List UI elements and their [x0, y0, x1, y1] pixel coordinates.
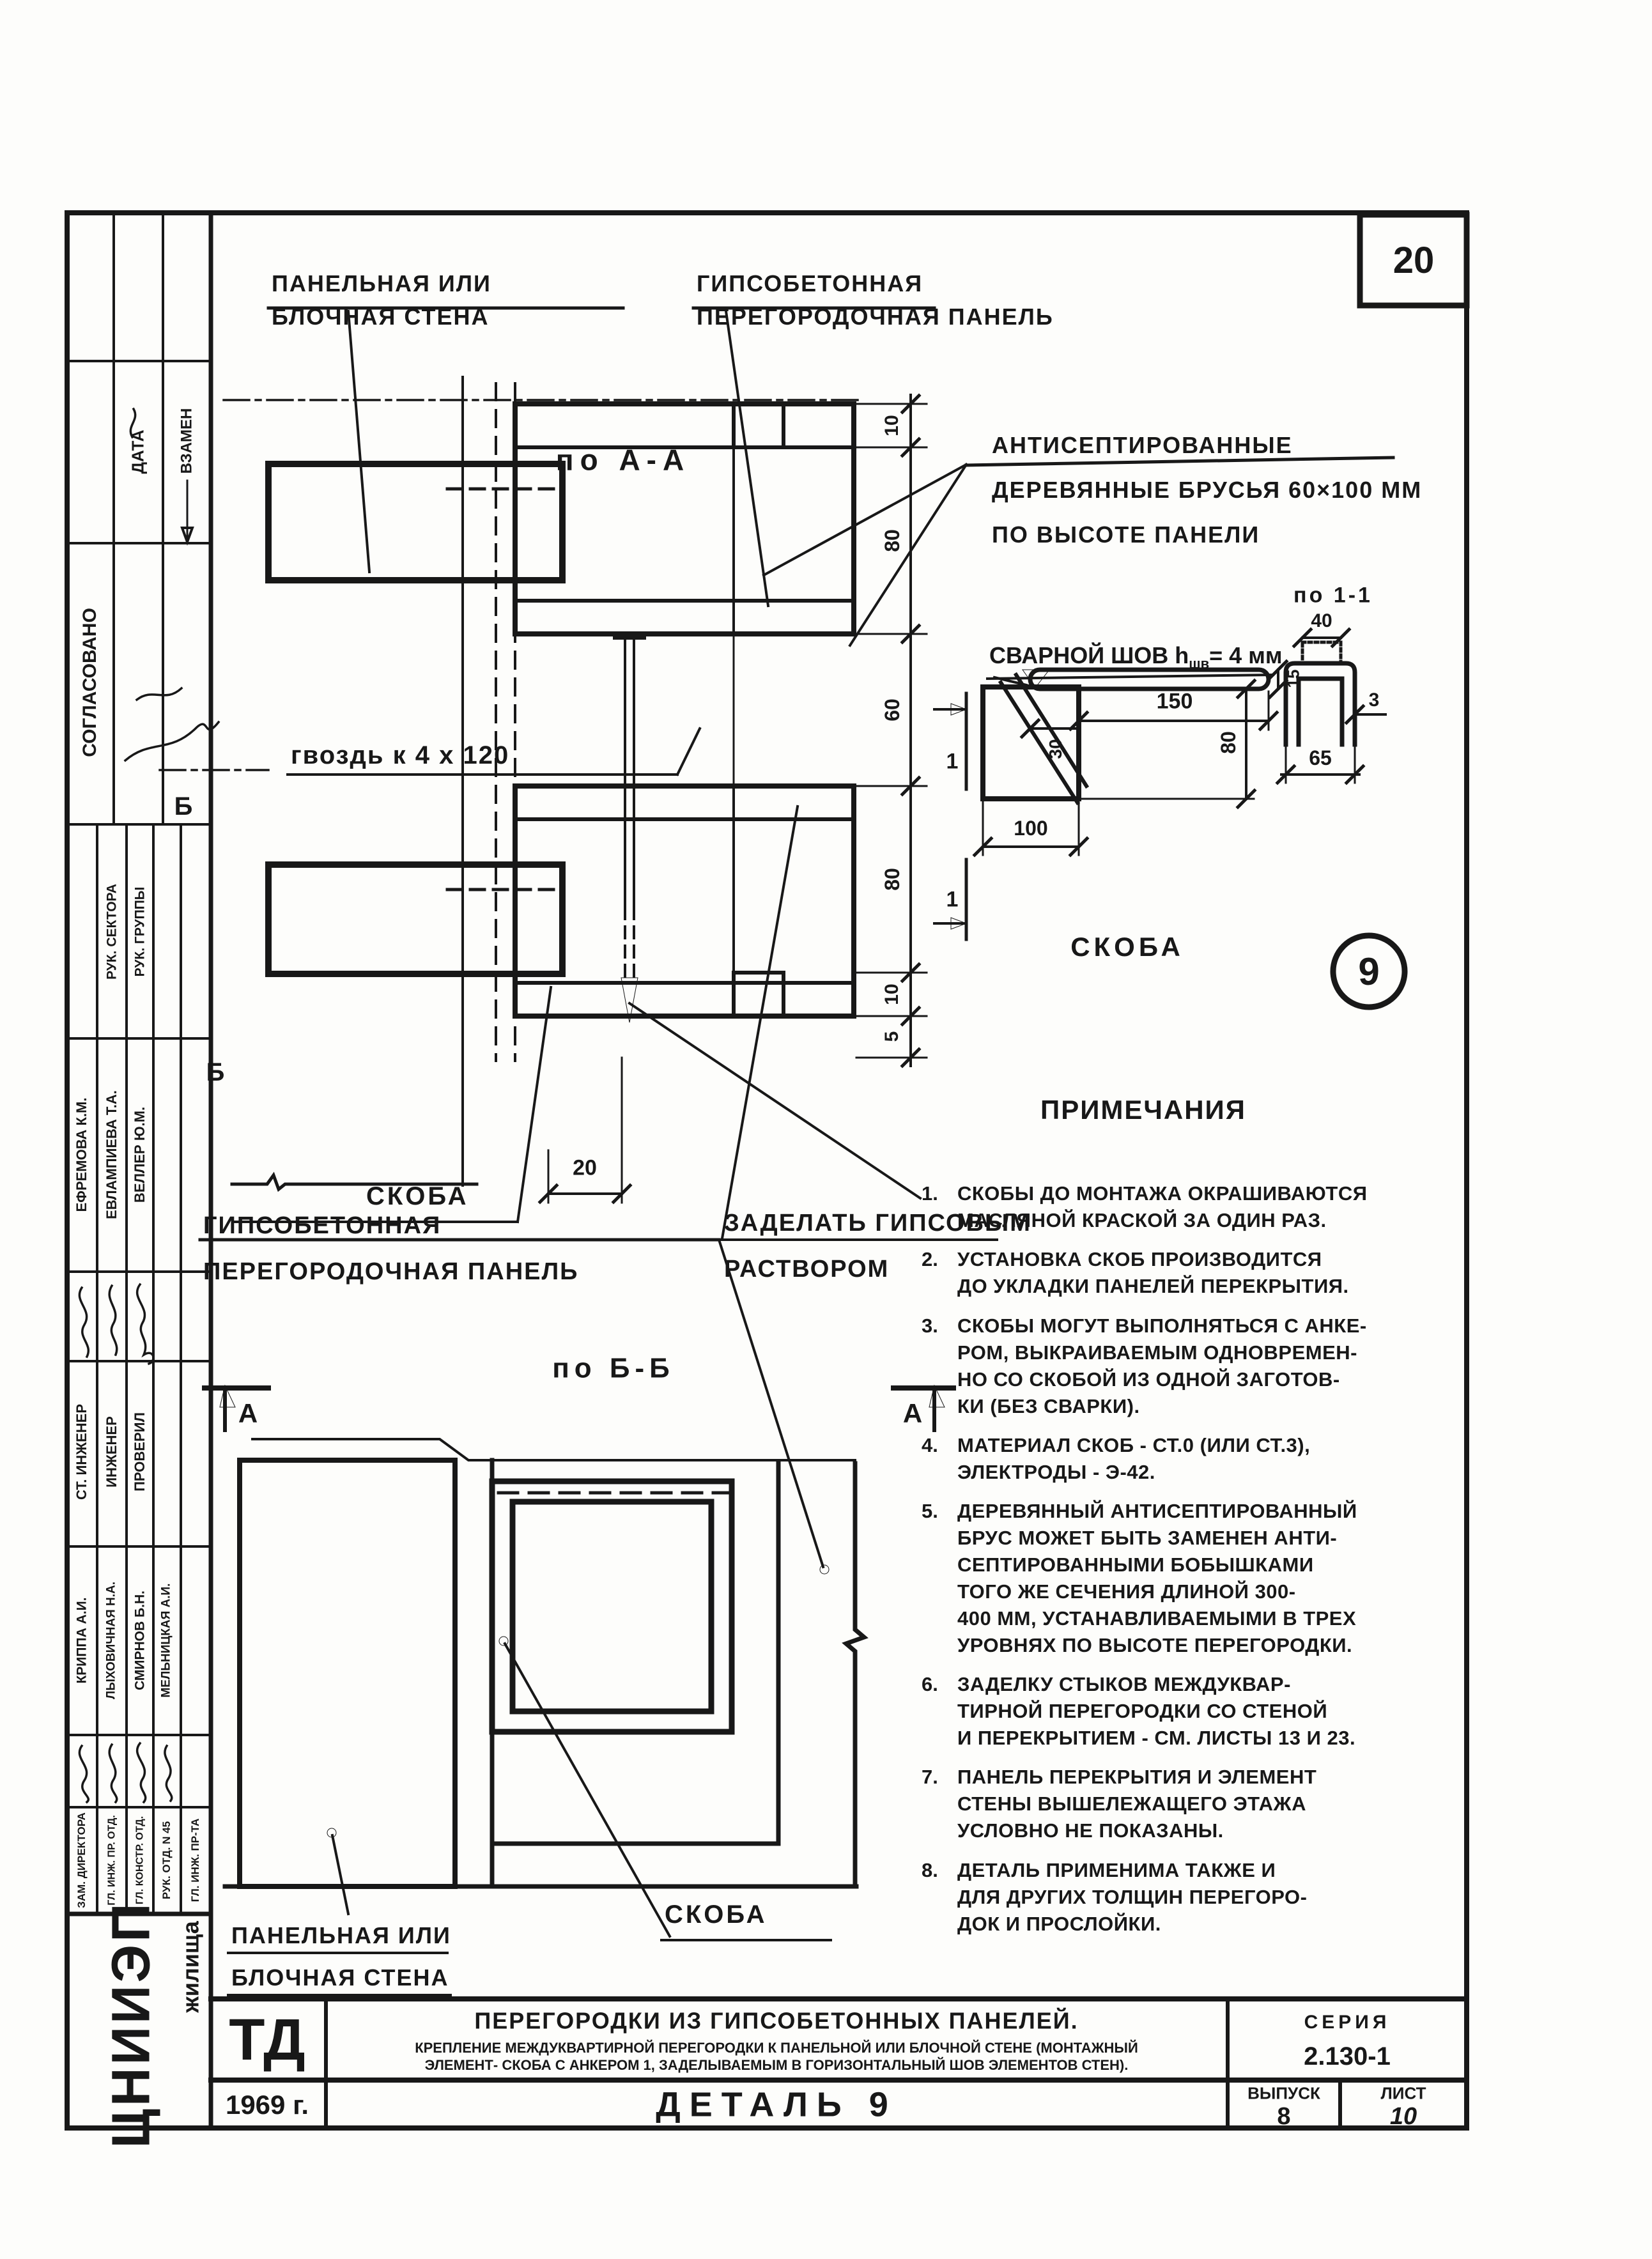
aa-section-b-mark-2: Б — [206, 1057, 225, 1088]
bb-section-title: по Б-Б — [552, 1352, 675, 1386]
stamp-name-evlampieva: ЕВЛАМПИЕВА Т.А. — [104, 1090, 120, 1219]
stamp-replacement-label: ВЗАМЕН — [178, 408, 197, 474]
skoba-dim-100: 100 — [1014, 816, 1047, 840]
titleblock-series-label: СЕРИЯ — [1304, 2011, 1391, 2034]
stamp-role-checked: ПРОВЕРИЛ — [132, 1412, 148, 1492]
bb-amark-left: А — [238, 1398, 258, 1430]
stamp-job-deputy-director: ЗАМ. ДИРЕКТОРА — [75, 1812, 88, 1908]
stamp-name-efremova: ЕФРЕМОВА К.М. — [73, 1097, 90, 1212]
titleblock-issue-value: 8 — [1277, 2102, 1290, 2132]
org-logo: ЦНИИЭП — [99, 1901, 164, 2148]
skoba-sec11-title: по 1-1 — [1293, 583, 1373, 609]
skoba-dim-30: 30 — [1045, 739, 1067, 759]
org-logo-sub: жилища — [176, 1921, 204, 2013]
skoba-name-label: СКОБА — [1070, 931, 1184, 963]
note-item: 6.ЗАДЕЛКУ СТЫКОВ МЕЖДУКВАР- ТИРНОЙ ПЕРЕГ… — [922, 1671, 1465, 1752]
stamp-title-group: РУК. ГРУППЫ — [132, 887, 148, 977]
aa-dim-80-bottom: 80 — [880, 868, 904, 891]
notes-header: ПРИМЕЧАНИЯ — [1040, 1094, 1246, 1126]
aa-dim-60: 60 — [880, 698, 904, 721]
notes-list: 1.СКОБЫ ДО МОНТАЖА ОКРАШИВАЮТСЯ МАСЛЯНОЙ… — [922, 1168, 1465, 1950]
skoba-dim-80: 80 — [1216, 731, 1240, 754]
stamp-job-chief-constructor: ГЛ. КОНСТР. ОТД. — [134, 1816, 146, 1904]
aa-panel-label: ГИПСОБЕТОННАЯ ПЕРЕГОРОДОЧНАЯ ПАНЕЛЬ — [697, 267, 1054, 334]
aa-dim-80-top: 80 — [880, 529, 904, 552]
weld-label-sub: шв — [1189, 656, 1209, 672]
aa-section-title: по А-А — [556, 442, 690, 477]
note-item: 5.ДЕРЕВЯННЫЙ АНТИСЕПТИРОВАННЫЙ БРУС МОЖЕ… — [922, 1498, 1465, 1659]
detail-number-badge: 9 — [1358, 949, 1379, 995]
stamp-name-veller: ВЕЛЛЕР Ю.М. — [132, 1107, 148, 1203]
note-item: 8.ДЕТАЛЬ ПРИМЕНИМА ТАКЖЕ И ДЛЯ ДРУГИХ ТО… — [922, 1857, 1465, 1938]
aa-dim-5: 5 — [881, 1031, 904, 1042]
skoba-dim-40: 40 — [1311, 610, 1332, 633]
stamp-job-project-engineer: ГЛ. ИНЖ. ПР-ТА — [189, 1819, 202, 1902]
titleblock-subtitle: КРЕПЛЕНИЕ МЕЖДУКВАРТИРНОЙ ПЕРЕГОРОДКИ К … — [415, 2039, 1138, 2074]
aa-dim-10-bottom: 10 — [881, 983, 904, 1005]
titleblock-series-value: 2.130-1 — [1304, 2041, 1391, 2072]
aa-brus-label: АНТИСЕПТИРОВАННЫЕ ДЕРЕВЯННЫЕ БРУСЬЯ 60×1… — [992, 423, 1422, 557]
note-item: 1.СКОБЫ ДО МОНТАЖА ОКРАШИВАЮТСЯ МАСЛЯНОЙ… — [922, 1180, 1465, 1234]
skoba-dim-150: 150 — [1157, 689, 1193, 715]
aa-nail-label: гвоздь к 4 х 120 — [291, 740, 509, 771]
bb-panel-label: ГИПСОБЕТОННАЯ ПЕРЕГОРОДОЧНАЯ ПАНЕЛЬ — [203, 1203, 578, 1295]
titleblock-detail-name: ДЕТАЛЬ 9 — [656, 2085, 897, 2126]
weld-label-pre: СВАРНОЙ ШОВ h — [989, 642, 1189, 668]
stamp-name-krippa: КРИППА А.И. — [73, 1597, 89, 1683]
aa-dim-10-top: 10 — [881, 415, 904, 436]
bb-wall-label: ПАНЕЛЬНАЯ ИЛИ БЛОЧНАЯ СТЕНА — [231, 1915, 451, 1999]
note-item: 2.УСТАНОВКА СКОБ ПРОИЗВОДИТСЯ ДО УКЛАДКИ… — [922, 1246, 1465, 1300]
bb-skoba-label: СКОБА — [665, 1899, 768, 1930]
skoba-dim-15: 15 — [1283, 670, 1303, 688]
stamp-approved-label: СОГЛАСОВАНО — [79, 608, 102, 757]
stamp-job-dept-head: РУК. ОТД. N 45 — [160, 1821, 173, 1899]
stamp-role-engineer: ИНЖЕНЕР — [104, 1416, 120, 1488]
aa-wall-label: ПАНЕЛЬНАЯ ИЛИ БЛОЧНАЯ СТЕНА — [272, 267, 491, 334]
bb-amark-right: А — [903, 1398, 922, 1430]
note-item: 7.ПАНЕЛЬ ПЕРЕКРЫТИЯ И ЭЛЕМЕНТ СТЕНЫ ВЫШЕ… — [922, 1764, 1465, 1844]
aa-dim-20: 20 — [573, 1155, 597, 1182]
aa-section-b-mark-1: Б — [174, 791, 193, 822]
stamp-role-st-engineer: СТ. ИНЖЕНЕР — [73, 1404, 90, 1500]
skoba-weld-label: СВАРНОЙ ШОВ hшв= 4 мм — [989, 642, 1282, 672]
titleblock-title: ПЕРЕГОРОДКИ ИЗ ГИПСОБЕТОННЫХ ПАНЕЛЕЙ. — [474, 2007, 1078, 2034]
note-item: 4.МАТЕРИАЛ СКОБ - СТ.0 (ИЛИ СТ.3), ЭЛЕКТ… — [922, 1432, 1465, 1486]
stamp-job-chief-engineer-dept: ГЛ. ИНЖ. ПР. ОТД. — [105, 1815, 118, 1906]
stamp-name-melnitskaya: МЕЛЬНИЦКАЯ А.И. — [160, 1584, 174, 1698]
skoba-dim-3: 3 — [1369, 689, 1380, 712]
drawing-sheet: 20 ДАТА ВЗАМЕН СОГЛАСОВАНО РУК. СЕКТОРА … — [0, 0, 1652, 2259]
titleblock-sheet-value: 10 — [1390, 2102, 1417, 2132]
titleblock-sheet-label: ЛИСТ — [1381, 2083, 1426, 2103]
titleblock-issue-label: ВЫПУСК — [1247, 2083, 1320, 2103]
weld-label-post: = 4 мм — [1209, 642, 1282, 668]
titleblock-org-code: ТД — [229, 2005, 305, 2075]
stamp-date-label: ДАТА — [128, 429, 148, 474]
skoba-sec-mark-bottom: 1 — [946, 887, 959, 913]
page-number: 20 — [1393, 238, 1435, 283]
titleblock-year: 1969 г. — [226, 2089, 309, 2121]
note-item: 3.СКОБЫ МОГУТ ВЫПОЛНЯТЬСЯ С АНКЕ- РОМ, В… — [922, 1313, 1465, 1420]
skoba-sec-mark-top: 1 — [946, 749, 959, 775]
skoba-dim-65: 65 — [1309, 746, 1332, 770]
stamp-name-smirnov: СМИРНОВ Б.Н. — [132, 1591, 148, 1690]
stamp-title-sector: РУК. СЕКТОРА — [104, 884, 120, 980]
stamp-name-lykhovichnaya: ЛЫХОВИЧНАЯ Н.А. — [105, 1582, 120, 1699]
